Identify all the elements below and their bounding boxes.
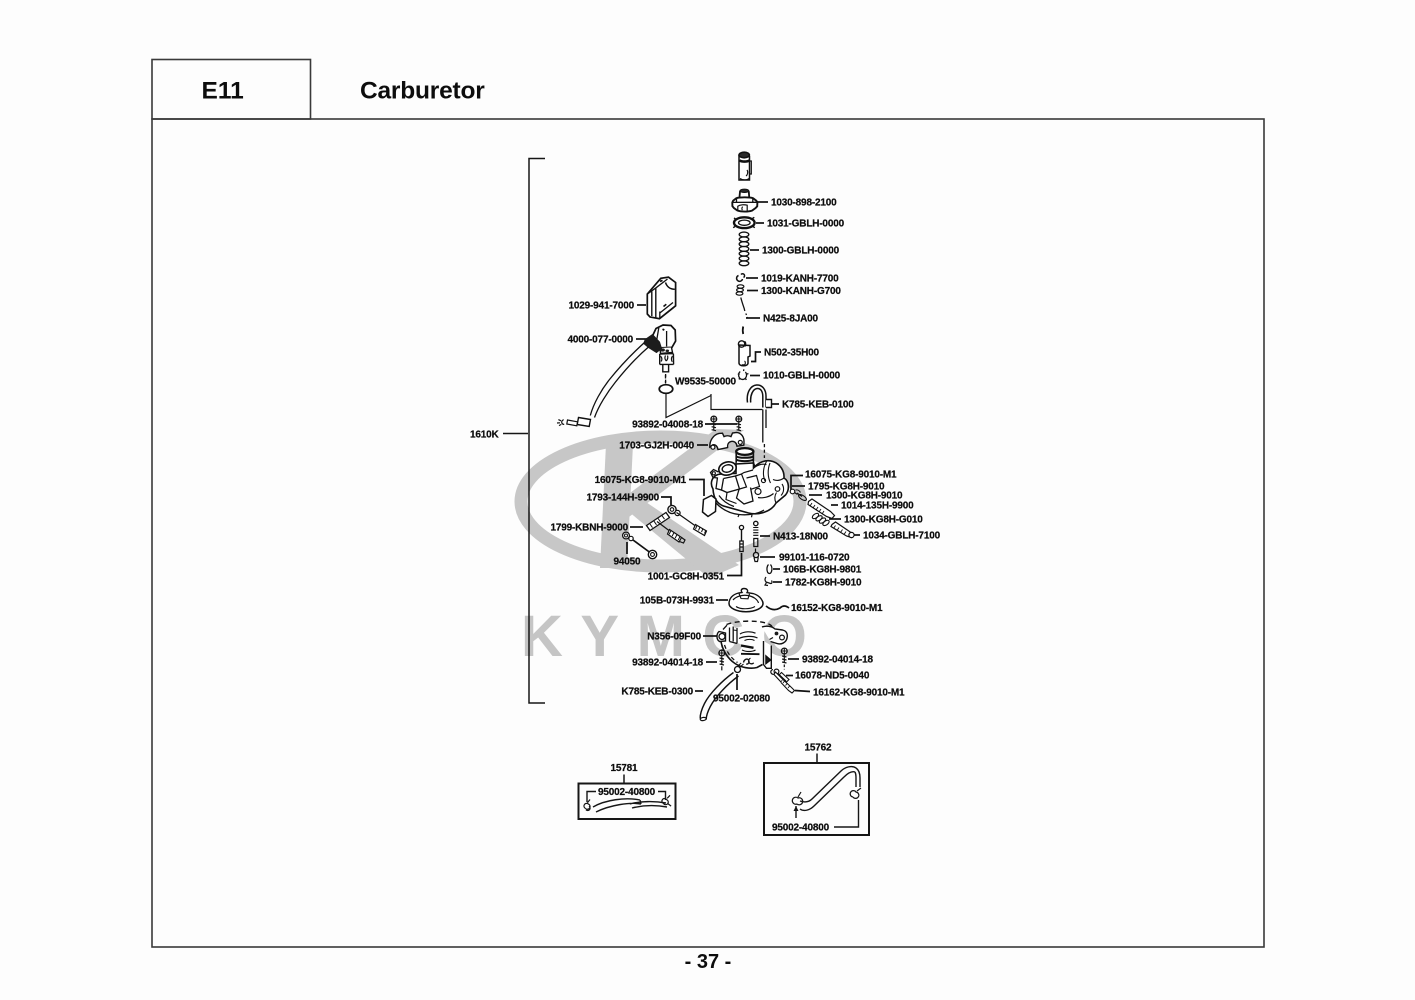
svg-text:93892-04014-18: 93892-04014-18 bbox=[802, 655, 873, 666]
svg-text:1610K: 1610K bbox=[470, 430, 500, 441]
svg-text:Carburetor: Carburetor bbox=[360, 78, 485, 105]
svg-text:N413-18N00: N413-18N00 bbox=[773, 532, 829, 543]
svg-text:N502-35H00: N502-35H00 bbox=[764, 348, 820, 359]
svg-text:105B-073H-9931: 105B-073H-9931 bbox=[640, 596, 715, 607]
svg-text:16075-KG8-9010-M1: 16075-KG8-9010-M1 bbox=[805, 470, 897, 481]
svg-text:N356-09F00: N356-09F00 bbox=[647, 632, 701, 643]
svg-text:16075-KG8-9010-M1: 16075-KG8-9010-M1 bbox=[595, 475, 687, 486]
svg-text:16162-KG8-9010-M1: 16162-KG8-9010-M1 bbox=[813, 688, 905, 699]
svg-text:16152-KG8-9010-M1: 16152-KG8-9010-M1 bbox=[791, 603, 883, 614]
svg-text:15762: 15762 bbox=[805, 743, 833, 754]
svg-text:E11: E11 bbox=[202, 78, 244, 105]
svg-text:1300-GBLH-0000: 1300-GBLH-0000 bbox=[762, 246, 840, 257]
svg-text:99101-116-0720: 99101-116-0720 bbox=[779, 553, 850, 564]
svg-text:1031-GBLH-0000: 1031-GBLH-0000 bbox=[767, 219, 845, 230]
svg-text:W9535-50000: W9535-50000 bbox=[675, 377, 736, 388]
svg-text:94050: 94050 bbox=[614, 557, 642, 568]
svg-text:1300-KANH-G700: 1300-KANH-G700 bbox=[761, 286, 841, 297]
svg-text:1030-898-2100: 1030-898-2100 bbox=[771, 198, 837, 209]
svg-text:1010-GBLH-0000: 1010-GBLH-0000 bbox=[763, 371, 841, 382]
svg-text:106B-KG8H-9801: 106B-KG8H-9801 bbox=[783, 565, 862, 576]
svg-text:95002-02080: 95002-02080 bbox=[713, 694, 771, 705]
svg-text:15781: 15781 bbox=[611, 763, 639, 774]
svg-text:16078-ND5-0040: 16078-ND5-0040 bbox=[795, 671, 870, 682]
svg-text:1300-KG8H-G010: 1300-KG8H-G010 bbox=[844, 515, 923, 526]
svg-text:1001-GC8H-0351: 1001-GC8H-0351 bbox=[648, 572, 725, 583]
svg-text:N425-8JA00: N425-8JA00 bbox=[763, 314, 819, 325]
svg-text:1019-KANH-7700: 1019-KANH-7700 bbox=[761, 274, 839, 285]
svg-text:95002-40800: 95002-40800 bbox=[772, 823, 830, 834]
svg-text:93892-04014-18: 93892-04014-18 bbox=[632, 658, 703, 669]
svg-text:- 37 -: - 37 - bbox=[685, 951, 732, 973]
svg-text:K785-KEB-0100: K785-KEB-0100 bbox=[782, 400, 854, 411]
svg-text:1703-GJ2H-0040: 1703-GJ2H-0040 bbox=[619, 441, 694, 452]
svg-text:1793-144H-9900: 1793-144H-9900 bbox=[586, 493, 659, 504]
svg-text:4000-077-0000: 4000-077-0000 bbox=[568, 335, 634, 346]
svg-text:1782-KG8H-9010: 1782-KG8H-9010 bbox=[785, 578, 862, 589]
svg-text:93892-04008-18: 93892-04008-18 bbox=[632, 420, 703, 431]
svg-text:1799-KBNH-9000: 1799-KBNH-9000 bbox=[550, 523, 628, 534]
svg-text:1029-941-7000: 1029-941-7000 bbox=[569, 301, 635, 312]
svg-text:95002-40800: 95002-40800 bbox=[598, 787, 656, 798]
svg-text:K785-KEB-0300: K785-KEB-0300 bbox=[621, 687, 693, 698]
svg-text:1014-135H-9900: 1014-135H-9900 bbox=[841, 501, 914, 512]
svg-text:1034-GBLH-7100: 1034-GBLH-7100 bbox=[863, 531, 941, 542]
